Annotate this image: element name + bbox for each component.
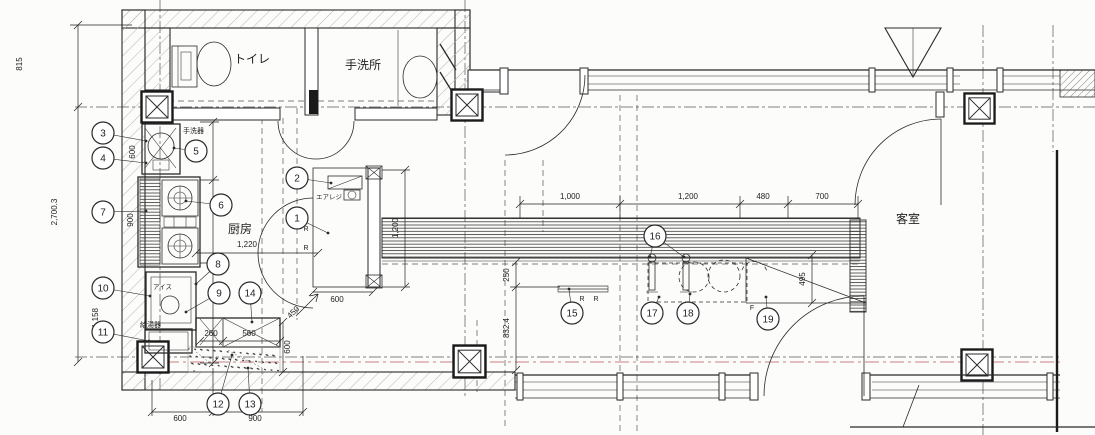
stipple-dot	[215, 357, 216, 358]
dimension-text: 250	[502, 268, 511, 282]
stipple-dot	[257, 368, 258, 369]
label-handwash: 手洗所	[345, 58, 381, 72]
stipple-dot	[233, 352, 234, 353]
kitchen-range-unit	[138, 177, 200, 267]
stipple-dot	[193, 370, 194, 371]
callout-number-6: 6	[218, 201, 224, 212]
wall-hatch-end	[1060, 70, 1095, 97]
stipple-dot	[253, 353, 254, 354]
dimension-text: 700	[815, 192, 829, 201]
label-kitchen: 厨房	[228, 221, 252, 236]
callout-leader-dot	[173, 147, 176, 150]
label-water-heater: 給湯器	[140, 320, 161, 329]
callout-leader-dot	[327, 232, 330, 235]
stipple-dot	[250, 367, 251, 368]
dimension-text: 2,700.3	[50, 198, 59, 225]
stipple-dot	[198, 363, 199, 364]
label-dining: 客室	[896, 211, 920, 226]
callout-leader-dot	[683, 256, 686, 259]
callout-leader-dot	[649, 256, 652, 259]
counter-top	[382, 218, 860, 258]
window-mullion	[719, 373, 725, 400]
dimension-text: 900	[126, 213, 135, 227]
floor-plan-page: トイレ手洗所厨房客室手洗器給湯器アイスエアレジ 8152,700.3600900…	[0, 0, 1095, 435]
dimension-text: 1,200	[678, 192, 699, 201]
stipple-dot	[219, 350, 220, 351]
stipple-dot	[272, 355, 273, 356]
reference-letter: R	[303, 245, 308, 252]
door-post	[862, 373, 870, 400]
callout-number-15: 15	[566, 309, 578, 320]
column	[964, 93, 994, 123]
dimension-text: 1,000	[560, 192, 581, 201]
dimension-text: 600	[330, 295, 344, 304]
column	[138, 342, 169, 373]
stipple-dot	[277, 370, 278, 371]
stipple-dot	[222, 358, 223, 359]
stipple-dot	[218, 365, 219, 366]
entrance-unit	[313, 168, 368, 287]
callout-leader-dot	[145, 140, 148, 143]
stipple-dot	[246, 353, 247, 354]
callout-number-16: 16	[649, 232, 661, 243]
stipple-dot	[204, 364, 205, 365]
door-post	[580, 68, 588, 94]
column	[452, 90, 483, 121]
dimension-text: 600	[283, 340, 292, 354]
site-lines	[850, 150, 1095, 432]
callout-leader-dot	[145, 210, 148, 213]
stipple-dot	[266, 354, 267, 355]
stipple-dot	[224, 365, 225, 366]
door-arc-dining-top	[505, 75, 585, 155]
handwash-basin	[398, 30, 437, 106]
stipple-dot	[259, 354, 260, 355]
callout-number-12: 12	[212, 400, 224, 411]
window-mullion	[997, 68, 1003, 92]
stipple-dot	[228, 358, 229, 359]
reference-letter: R	[593, 296, 598, 303]
reference-letter: R	[579, 296, 584, 303]
callout-number-5: 5	[193, 147, 199, 158]
callout-leader-dot	[231, 354, 234, 357]
dimension-text: 1,220	[237, 240, 258, 249]
window-mullion	[1047, 373, 1053, 400]
stipple-dot	[188, 348, 189, 349]
dimension-text: 560	[242, 329, 256, 338]
sink-bowl-dashed	[708, 260, 740, 292]
stipple-dot	[227, 351, 228, 352]
door-jamb-right	[936, 92, 944, 117]
under-counter-dashed	[648, 263, 747, 302]
floor-plan-drawing: トイレ手洗所厨房客室手洗器給湯器アイスエアレジ 8152,700.3600900…	[0, 0, 1095, 435]
stipple-dot	[244, 367, 245, 368]
windows-top	[470, 68, 1095, 97]
column	[454, 346, 486, 378]
toilet-fixture	[172, 42, 231, 87]
callout-leader-dot	[765, 296, 768, 299]
stipple-dot	[242, 360, 243, 361]
callout-number-1: 1	[294, 214, 300, 225]
callout-bubbles: 12345678910111213141516171819	[92, 122, 779, 415]
callout-leader-dot	[148, 340, 151, 343]
dimension-text: 600	[173, 414, 187, 423]
label-air-regi: エアレジ	[316, 193, 343, 201]
label-toilet: トイレ	[234, 52, 270, 66]
counter-outlet-strip	[558, 286, 608, 292]
dimension-text: 1,200	[391, 217, 400, 238]
stipple-dot	[262, 361, 263, 362]
callout-leader-dot	[330, 182, 333, 185]
window-mullion	[617, 373, 623, 400]
callout-number-11: 11	[98, 328, 109, 339]
dimension-text: 260	[204, 329, 218, 338]
stipple-dot	[191, 363, 192, 364]
stipple-dot	[194, 349, 195, 350]
dimension-text: 832.4	[502, 317, 511, 338]
window-mullion	[947, 68, 953, 92]
door-arc-handwash	[278, 121, 354, 159]
dimension-text: 815	[15, 57, 24, 71]
wall-rooms-south-right	[355, 108, 437, 120]
sink-bowl-dashed	[679, 262, 709, 292]
wall-top	[122, 10, 470, 28]
callout-leader-dot	[658, 296, 661, 299]
label-ice-box: アイス	[153, 283, 172, 291]
stipple-dot	[237, 366, 238, 367]
stipple-dot	[231, 366, 232, 367]
stipple-dot	[209, 357, 210, 358]
stipple-dot	[270, 369, 271, 370]
callout-leader-dot	[185, 311, 188, 314]
door-post	[750, 373, 758, 400]
callout-number-17: 17	[646, 309, 658, 320]
callout-number-19: 19	[762, 315, 774, 326]
callout-leader-dot	[247, 367, 250, 370]
callout-leader-dot	[689, 293, 692, 296]
stipple-texture	[188, 348, 279, 371]
callout-leader-dot	[185, 200, 188, 203]
callout-number-8: 8	[215, 260, 221, 271]
stipple-dot	[264, 369, 265, 370]
dimension-text: 480	[756, 192, 770, 201]
window-mullion	[517, 373, 523, 400]
stipple-dot	[255, 361, 256, 362]
dimension-text: 495	[798, 272, 807, 286]
callout-number-10: 10	[97, 284, 109, 295]
stipple-dot	[189, 355, 190, 356]
callout-number-9: 9	[216, 289, 222, 300]
window-mullion	[869, 68, 875, 92]
callout-leader-dot	[568, 288, 571, 291]
wall-partition	[368, 168, 380, 287]
door-arc-dining-right	[855, 119, 941, 205]
callout-number-3: 3	[100, 129, 106, 140]
stipple-dot	[275, 362, 276, 363]
callout-number-18: 18	[682, 309, 694, 320]
wall-pier-black	[309, 90, 318, 114]
door-post	[500, 68, 508, 94]
door-arc-bottom	[764, 296, 864, 396]
column	[962, 350, 993, 381]
stipple-dot	[240, 352, 241, 353]
stipple-dot	[196, 356, 197, 357]
reference-letter: F	[750, 305, 754, 312]
wall-pier-toilet	[145, 28, 170, 90]
floor-finish-area	[188, 347, 280, 372]
callout-number-14: 14	[244, 289, 256, 300]
counter	[382, 218, 866, 312]
door-arc-kitchen-down	[258, 253, 313, 308]
stipple-dot	[268, 362, 269, 363]
callout-leader-dot	[145, 162, 148, 165]
stipple-dot	[200, 349, 201, 350]
callout-leader-dot	[251, 321, 254, 324]
callout-number-13: 13	[244, 400, 256, 411]
callout-leader-dot	[149, 295, 152, 298]
dimension-text: 600	[128, 145, 137, 159]
stipple-dot	[235, 359, 236, 360]
callout-number-4: 4	[100, 154, 106, 165]
callout-number-7: 7	[100, 208, 106, 219]
label-hand-basin: 手洗器	[183, 126, 204, 135]
stipple-dot	[206, 349, 207, 350]
column	[142, 92, 173, 123]
callout-number-2: 2	[294, 174, 300, 185]
callout-leader-dot	[195, 283, 198, 286]
